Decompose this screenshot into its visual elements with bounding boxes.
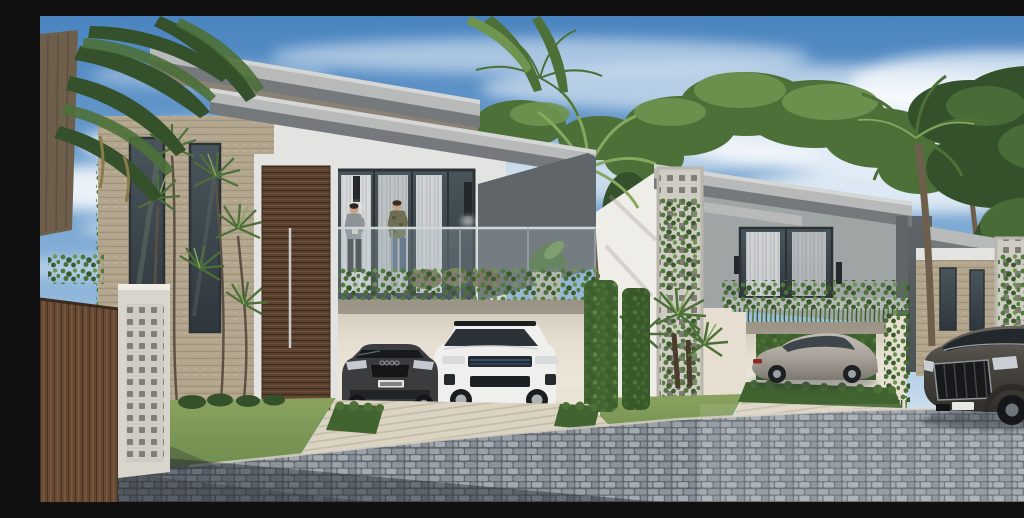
villa2-wall-sconce	[734, 256, 739, 274]
fence-back-vines	[48, 254, 104, 284]
wood-slat-fence	[40, 298, 118, 502]
pillar-breeze-screen	[126, 304, 164, 462]
suv-windshield	[444, 329, 538, 346]
suv2-grille	[934, 360, 992, 400]
suv-grille	[468, 356, 532, 367]
suv2-license-plate	[952, 402, 974, 410]
suv2-headlight	[924, 360, 934, 372]
balcony-vines	[318, 268, 600, 304]
hedge-columns	[584, 280, 650, 412]
white-suv	[434, 321, 562, 415]
column-vines	[884, 302, 910, 402]
architectural-render: Sunny 3D rendering of a row of modern tw…	[40, 16, 1024, 502]
suv-headlight	[535, 356, 558, 364]
villa2-balcony-vines	[722, 280, 910, 310]
villa2-screen-vines	[660, 198, 700, 290]
villa3-window	[970, 270, 984, 330]
suv-headlight	[442, 356, 465, 364]
wood-pivot-door	[254, 154, 338, 414]
suv2-headlight	[992, 356, 1018, 370]
sedan-grille	[370, 364, 410, 378]
coupe-taillight	[753, 359, 762, 364]
villa3-window	[940, 268, 956, 330]
render-canvas	[40, 16, 1024, 502]
